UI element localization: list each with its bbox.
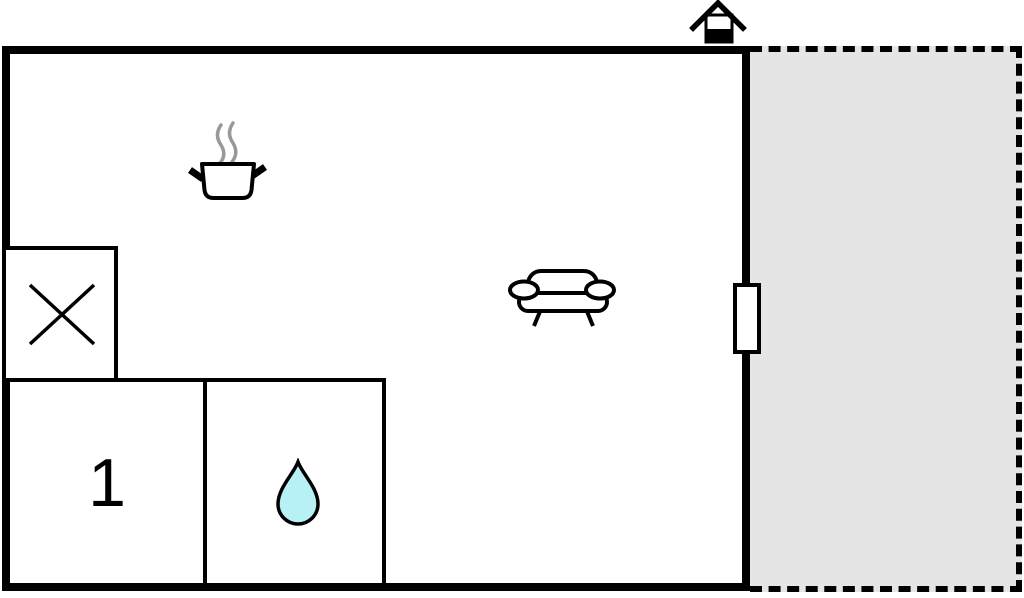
- floor-plan: 1: [0, 0, 1024, 598]
- cooking-pot-icon: [185, 115, 270, 205]
- window-marker: [733, 283, 761, 354]
- partition-wall-bathroom-right: [382, 378, 386, 591]
- steam-icon: [230, 123, 236, 162]
- crossed-square-icon: [6, 250, 118, 378]
- bedroom-room: 1: [10, 382, 204, 583]
- crossed-square-room: [2, 246, 118, 382]
- steam-icon: [218, 125, 224, 163]
- sofa-icon: [505, 263, 620, 331]
- house-icon: [686, 0, 750, 46]
- bedroom-number-label: 1: [88, 449, 126, 517]
- terrace-area: [750, 46, 1022, 592]
- water-drop-icon: [274, 458, 322, 530]
